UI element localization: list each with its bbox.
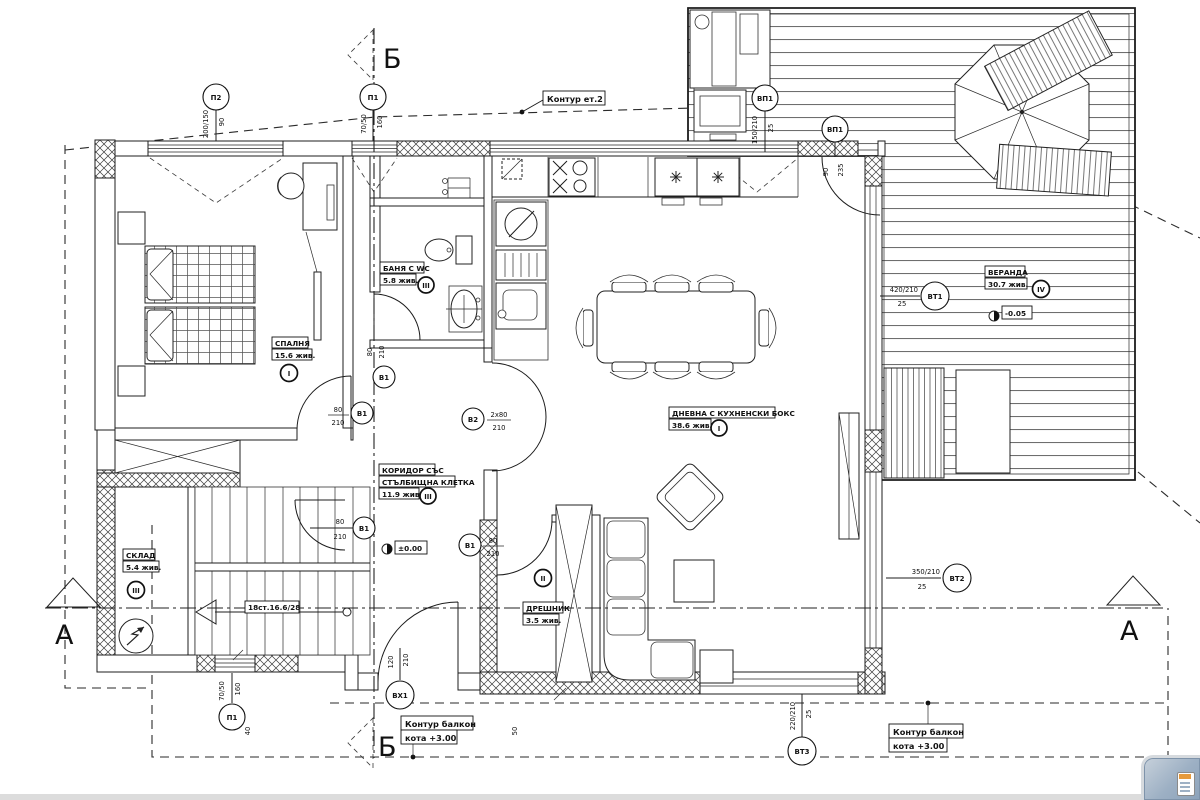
svg-text:210: 210 — [487, 550, 500, 558]
svg-text:СПАЛНЯ: СПАЛНЯ — [275, 339, 310, 348]
svg-text:25: 25 — [767, 124, 775, 133]
marker-v2: В2 2x80 210 — [462, 408, 511, 432]
bed — [145, 307, 255, 364]
svg-text:3.5 жив.: 3.5 жив. — [526, 616, 561, 625]
svg-text:П2: П2 — [211, 94, 222, 102]
marker-p1-bottom: П1 70/50 160 — [218, 673, 245, 730]
svg-text:90: 90 — [822, 168, 830, 177]
svg-text:Контур балкон: Контур балкон — [893, 727, 964, 737]
fridge-icon — [496, 202, 546, 246]
svg-text:160: 160 — [234, 683, 242, 696]
dining-table — [597, 291, 755, 363]
svg-text:5.4 жив.: 5.4 жив. — [126, 563, 161, 572]
marker-vh1: ВХ1 120 210 — [386, 648, 414, 709]
room-label-corridor: КОРИДОР СЪС СТЪЛБИЩНА КЛЕТКА 11.9 жив. I… — [379, 464, 475, 504]
dishwasher-icon — [496, 250, 546, 280]
closet-wardrobe — [556, 505, 592, 682]
tv-unit — [839, 413, 859, 539]
outdoor-table — [956, 370, 1010, 473]
section-letter-a-left: А — [55, 620, 74, 651]
svg-text:15.6 жив.: 15.6 жив. — [275, 351, 316, 360]
armchair-icon — [655, 462, 726, 533]
section-arrow-a-left — [47, 578, 100, 607]
svg-text:160: 160 — [376, 116, 384, 129]
staircase — [115, 440, 370, 655]
note-balcony-contour-left: Контур балкон кота +3.00 — [401, 716, 476, 759]
svg-text:210: 210 — [402, 654, 410, 667]
sofa-corner — [604, 413, 859, 683]
section-arrow-a-right — [1107, 576, 1160, 605]
svg-text:150/210: 150/210 — [751, 116, 759, 144]
svg-text:210: 210 — [493, 424, 506, 432]
room-label-bedroom: СПАЛНЯ 15.6 жив. I — [272, 337, 316, 382]
kitchen-sink-icon — [655, 158, 739, 205]
svg-text:Контур ет.2: Контур ет.2 — [547, 94, 603, 104]
svg-text:5.8 жив.: 5.8 жив. — [383, 276, 418, 285]
svg-text:80: 80 — [334, 406, 343, 414]
marker-p2: П2 200/150 90 — [202, 84, 229, 141]
svg-text:СКЛАД: СКЛАД — [126, 551, 156, 560]
room-label-living: ДНЕВНА С КУХНЕНСКИ БОКС 38.6 жив. I — [669, 407, 795, 436]
stairs-label: 18ст.16.6/28 — [245, 601, 300, 613]
document-icon — [1177, 772, 1195, 796]
svg-text:ВХ1: ВХ1 — [392, 692, 408, 700]
section-arrow-b-top — [348, 30, 373, 80]
section-arrow-b-bottom — [348, 718, 373, 768]
floor-plan-page: Б Б А А П2 200/150 90 П1 70/50 160 ВП1 1… — [0, 0, 1200, 800]
note-balcony-contour-right: Контур балкон кота +3.00 — [889, 701, 964, 752]
dim-40: 40 — [244, 727, 252, 736]
svg-text:2x80: 2x80 — [491, 411, 508, 419]
svg-text:38.6 жив.: 38.6 жив. — [672, 421, 713, 430]
svg-text:70/50: 70/50 — [218, 681, 226, 701]
svg-text:18ст.16.6/28: 18ст.16.6/28 — [248, 603, 300, 612]
svg-text:П1: П1 — [368, 94, 379, 102]
svg-text:80: 80 — [366, 348, 374, 357]
svg-text:ВТ2: ВТ2 — [950, 575, 965, 583]
svg-text:кота +3.00: кота +3.00 — [405, 733, 457, 743]
marker-vt3: ВТ3 220/210 25 — [788, 694, 816, 765]
svg-text:ВТ3: ВТ3 — [795, 748, 810, 756]
window-p2 — [148, 141, 283, 156]
svg-text:220/210: 220/210 — [789, 702, 797, 730]
marker-v1-bedroom: В1 80 210 — [366, 346, 395, 388]
marker-p1-top: П1 70/50 160 — [360, 84, 386, 141]
svg-text:кота +3.00: кота +3.00 — [893, 741, 945, 751]
svg-text:25: 25 — [898, 300, 907, 308]
svg-text:ДРЕШНИК: ДРЕШНИК — [526, 604, 570, 613]
svg-text:III: III — [424, 493, 432, 501]
svg-text:I: I — [288, 370, 291, 378]
dim-50: 50 — [511, 727, 519, 736]
svg-text:В1: В1 — [357, 410, 367, 418]
side-table — [700, 650, 733, 683]
svg-text:В1: В1 — [379, 374, 389, 382]
svg-text:235: 235 — [837, 164, 845, 177]
page-bottom-strip — [0, 794, 1200, 800]
svg-text:30.7 жив.: 30.7 жив. — [988, 280, 1029, 289]
svg-text:200/150: 200/150 — [202, 110, 210, 138]
nightstand — [118, 212, 145, 244]
svg-text:ВП1: ВП1 — [757, 95, 773, 103]
svg-text:В2: В2 — [468, 416, 478, 424]
svg-text:210: 210 — [334, 533, 347, 541]
cooktop-icon — [549, 158, 595, 196]
mirror-panel — [314, 272, 321, 340]
toilet-icon — [425, 236, 472, 264]
svg-text:90: 90 — [218, 118, 226, 127]
prep-sink-icon — [496, 283, 546, 329]
sink-icon — [446, 286, 482, 332]
svg-text:В1: В1 — [465, 542, 475, 550]
svg-text:350/210: 350/210 — [912, 568, 940, 576]
svg-text:ВТ1: ВТ1 — [928, 293, 943, 301]
svg-text:70/50: 70/50 — [360, 114, 368, 134]
svg-text:III: III — [132, 587, 140, 595]
floor-plan-drawing: Б Б А А П2 200/150 90 П1 70/50 160 ВП1 1… — [0, 0, 1200, 800]
coffee-table — [674, 560, 714, 602]
svg-text:ВЕРАНДА: ВЕРАНДА — [988, 268, 1028, 277]
svg-text:БАНЯ С WC: БАНЯ С WC — [383, 264, 430, 273]
svg-text:25: 25 — [805, 710, 813, 719]
svg-text:±0.00: ±0.00 — [398, 544, 422, 553]
svg-text:210: 210 — [332, 419, 345, 427]
svg-text:80: 80 — [489, 537, 498, 545]
svg-text:П1: П1 — [227, 714, 238, 722]
svg-text:II: II — [540, 575, 545, 583]
svg-text:I: I — [718, 425, 721, 433]
window-vt1 — [865, 186, 882, 430]
svg-text:СТЪЛБИЩНА КЛЕТКА: СТЪЛБИЩНА КЛЕТКА — [382, 478, 475, 487]
window-vt2 — [865, 472, 882, 648]
svg-text:420/210: 420/210 — [890, 286, 918, 294]
section-letter-b-bottom: Б — [378, 732, 397, 763]
svg-text:-0.05: -0.05 — [1005, 309, 1026, 318]
svg-text:В1: В1 — [359, 525, 369, 533]
bedroom-furniture — [118, 163, 337, 396]
vent-icon — [502, 159, 522, 179]
svg-text:III: III — [422, 282, 430, 290]
electric-meter-icon — [119, 619, 153, 653]
svg-text:210: 210 — [378, 346, 386, 359]
svg-text:25: 25 — [918, 583, 927, 591]
sun-lounger-icon — [997, 144, 1112, 196]
bed — [145, 246, 255, 303]
room-label-bath: БАНЯ С WC 5.8 жив. III — [380, 262, 434, 293]
svg-text:КОРИДОР СЪС: КОРИДОР СЪС — [382, 466, 444, 475]
level-mark-main: ±0.00 — [382, 541, 427, 554]
marker-vt2: ВТ2 350/210 25 — [886, 564, 971, 592]
svg-text:120: 120 — [387, 656, 395, 669]
dining-set — [576, 275, 776, 379]
built-in-wardrobe — [115, 440, 240, 473]
svg-text:ДНЕВНА С КУХНЕНСКИ БОКС: ДНЕВНА С КУХНЕНСКИ БОКС — [672, 409, 795, 418]
section-letter-b-top: Б — [383, 44, 402, 75]
section-letter-a-right: А — [1120, 616, 1139, 647]
room-label-storage: СКЛАД 5.4 жив. III — [123, 549, 161, 599]
nightstand — [118, 366, 145, 396]
svg-text:11.9 жив.: 11.9 жив. — [382, 490, 423, 499]
chair-icon — [278, 173, 304, 199]
svg-text:IV: IV — [1037, 286, 1046, 294]
svg-text:Контур балкон: Контур балкон — [405, 719, 476, 729]
radiator-icon — [443, 178, 471, 198]
svg-text:ВП1: ВП1 — [827, 126, 843, 134]
taskbar-popup-corner[interactable] — [1141, 755, 1200, 800]
svg-text:80: 80 — [336, 518, 345, 526]
sun-lounger-icon — [884, 368, 944, 478]
